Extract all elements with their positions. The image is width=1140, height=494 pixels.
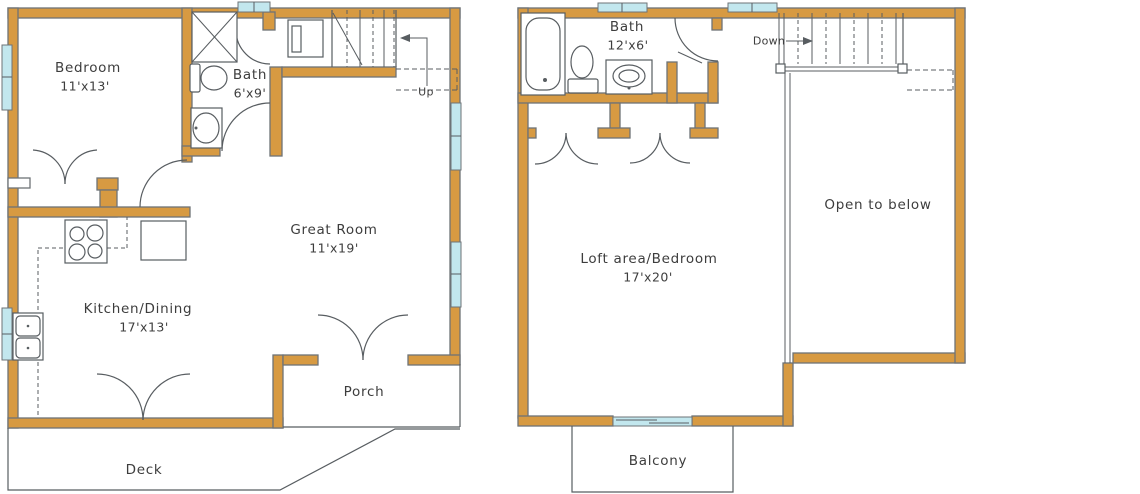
hall-door-arc [236,30,270,64]
closet-door-arc [33,150,65,184]
wall [598,128,630,138]
french-door-arc [97,374,143,420]
french-door-arc [363,315,408,360]
room-dims-bedroom: 11'x13' [60,79,110,94]
wall [712,18,722,30]
wall [783,363,793,426]
toilet-fixture [190,64,227,92]
bath-sink-fixture [191,108,222,148]
window [2,308,12,360]
window [451,242,461,307]
room-label-deck: Deck [126,462,163,478]
wall [667,62,677,103]
closet-door-arc [566,133,598,164]
room-label-great-room: Great Room [290,222,377,238]
rail-post [776,64,785,73]
room-label-kitchen: Kitchen/Dining [84,301,193,317]
room-label-open-to-below: Open to below [824,197,931,213]
room-label-bath1: Bath [233,67,267,83]
closet-door-arc [65,150,97,184]
shower-fixture [192,12,237,62]
bathtub-fixture [521,13,565,95]
loft-railing [785,73,790,363]
bath-door-arc [222,103,270,151]
french-door-arc [318,315,363,360]
vanity-sink-fixture [606,60,652,94]
floor2-plan [518,3,965,492]
window [728,3,777,12]
sliding-door [613,417,692,426]
stair-label-down: Down [753,35,785,48]
closet-door-arc [660,133,690,163]
room-label-bedroom: Bedroom [55,60,121,76]
stairs-up [332,10,457,90]
wall [518,416,613,426]
wall [692,416,793,426]
room-dims-bath1: 6'x9' [234,86,267,101]
floor-plan-sheet: Bedroom 11'x13' Bath 6'x9' Great Room 11… [0,0,1140,494]
stove-fixture [65,220,107,263]
room-dims-loft: 17'x20' [623,270,673,285]
room-label-porch: Porch [344,384,385,400]
plan-linework [0,0,1140,494]
toilet-fixture [568,46,598,93]
stairs-down [776,13,953,90]
rail-post [898,64,907,73]
window [2,45,12,110]
wall [695,103,705,130]
wall [270,67,282,156]
wall [528,128,536,138]
wall [708,62,718,103]
room-dims-bath2: 12'x6' [607,38,648,53]
room-label-balcony: Balcony [629,453,687,469]
wall [793,353,965,363]
up-arrow [408,38,427,86]
wall [97,178,118,190]
room-label-bath2: Bath [610,19,644,35]
wall [690,128,718,138]
wall [282,67,396,77]
window [598,3,647,12]
room-dims-great-room: 11'x19' [309,241,359,256]
wall [450,8,460,364]
wall [273,355,283,428]
stair-label-up: Up [418,86,434,99]
stair-rail [779,67,907,71]
kitchen-sink-fixture [13,313,43,360]
wall [8,178,30,188]
wall [408,355,460,365]
french-door-arc [143,374,190,420]
fridge-fixture [141,221,186,260]
closet-door-arc [535,133,566,164]
closet-door-panel [678,52,702,63]
deck-outline [8,428,460,490]
wall [283,355,318,365]
washer-dryer-fixture [288,20,323,57]
bedroom-door-arc [140,160,187,207]
wall [263,12,275,30]
wall [8,418,283,428]
room-dims-kitchen: 17'x13' [119,320,169,335]
up-arrowhead [400,34,410,42]
wall [955,8,965,363]
wall [610,103,620,130]
closet-door-arc [630,133,660,163]
window [238,2,270,12]
window [451,103,461,170]
wall [8,207,190,217]
room-label-loft: Loft area/Bedroom [580,251,717,267]
